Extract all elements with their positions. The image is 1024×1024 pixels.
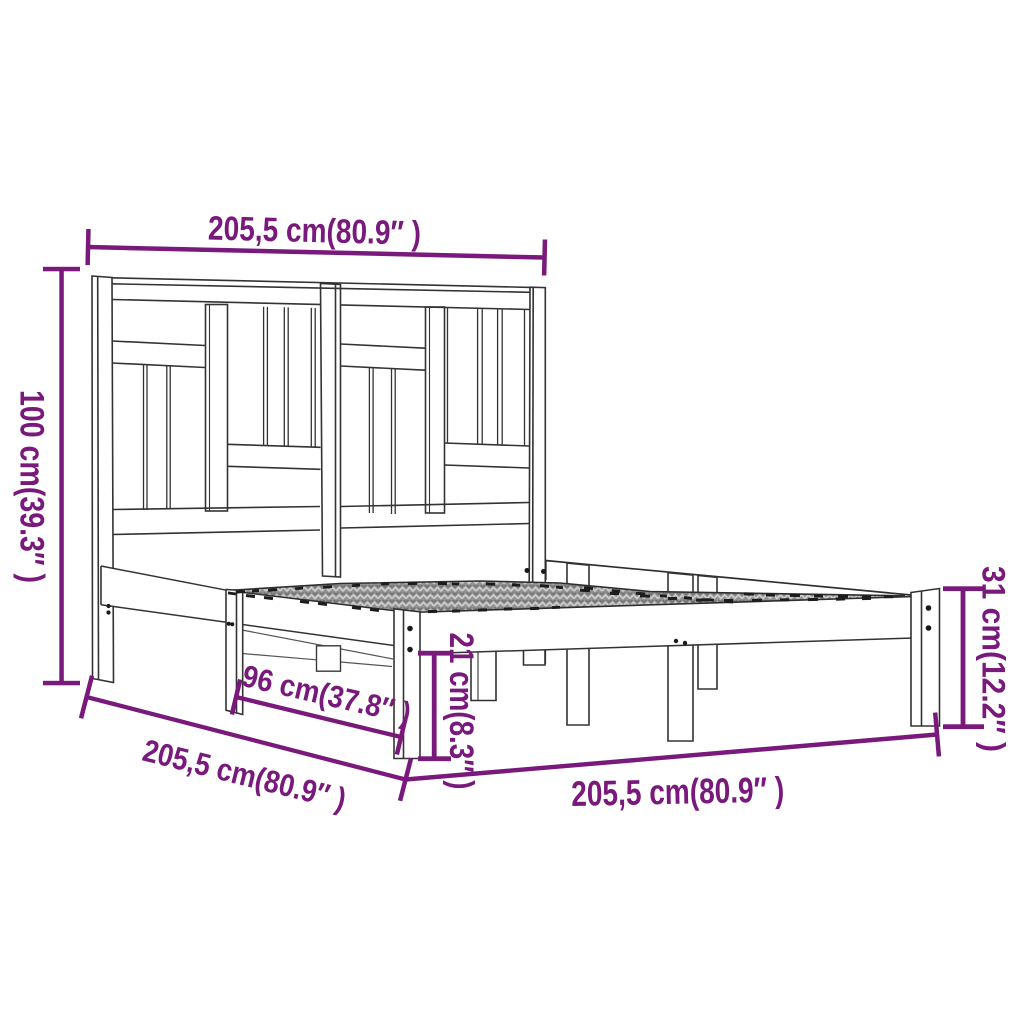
svg-text:100 cm(39.3″ ): 100 cm(39.3″ ) (13, 390, 51, 583)
svg-text:205,5 cm(80.9″ ): 205,5 cm(80.9″ ) (208, 210, 422, 253)
svg-text:205,5 cm(80.9″ ): 205,5 cm(80.9″ ) (571, 770, 785, 814)
svg-text:21 cm(8.3″ ): 21 cm(8.3″ ) (442, 633, 480, 790)
svg-text:31 cm(12.2″ ): 31 cm(12.2″ ) (976, 566, 1012, 752)
